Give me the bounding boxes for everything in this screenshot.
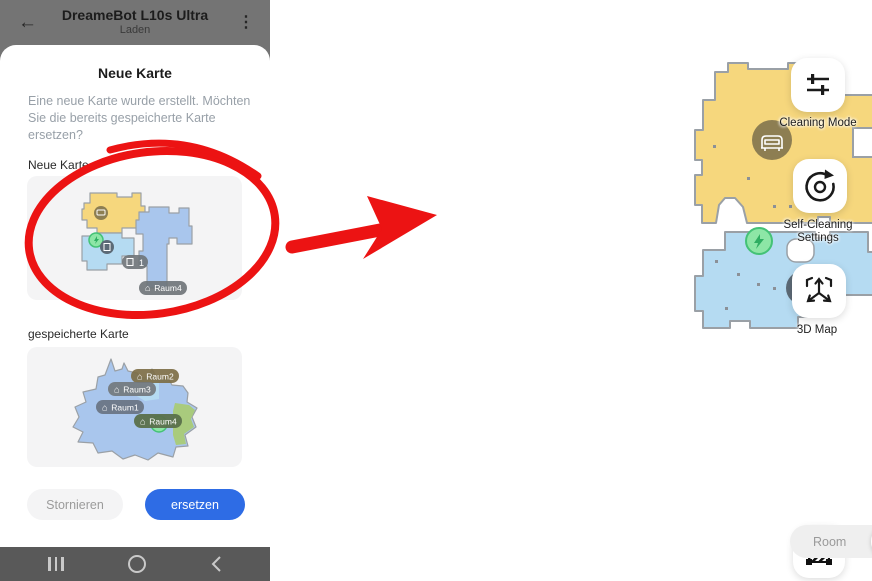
mode-option-room[interactable]: Room [790,535,869,549]
cancel-button[interactable]: Stornieren [27,489,123,520]
home-button-icon[interactable] [128,555,146,573]
house-icon: ⌂ [102,403,107,413]
tune-sliders-icon [799,66,837,104]
mini-dock-pill: 1 [122,255,148,269]
overflow-menu-icon[interactable]: ⋮ [238,12,254,32]
map-view[interactable]: Cleaning Mode Self-Cleaning Settings [270,0,872,581]
house-icon: ⌂ [145,283,150,293]
map-mode-switch: Room All Zone [790,525,872,558]
self-cleaning-settings-button[interactable] [793,159,847,213]
self-cleaning-settings-label: Self-Cleaning Settings [768,219,868,245]
svg-text:Raum4: Raum4 [154,283,182,293]
rotate-reset-icon [800,166,840,206]
mini-pill-raum4: ⌂ Raum4 [134,414,182,428]
cleaning-mode-label: Cleaning Mode [763,117,872,130]
dialog-message: Eine neue Karte wurde erstellt. Möchten … [28,93,256,144]
map-hole [853,128,872,157]
svg-text:1: 1 [139,258,144,268]
phone-app-panel: ← DreameBot L10s Ultra Laden ⋮ Neue Kart… [0,0,270,581]
replace-map-dialog: Neue Karte Eine neue Karte wurde erstell… [0,45,270,547]
house-icon: ⌂ [140,417,145,427]
device-status: Laden [0,24,270,36]
move-3d-icon [799,271,839,311]
saved-map-label: gespeicherte Karte [28,327,129,341]
house-icon: ⌂ [137,372,142,382]
svg-text:Raum4: Raum4 [149,417,177,427]
svg-text:Raum2: Raum2 [146,372,174,382]
device-title: DreameBot L10s Ultra [0,7,270,23]
svg-text:Raum3: Raum3 [123,385,151,395]
mini-pill-raum2: ⌂ Raum2 [131,369,179,383]
mini-robot-icon [100,240,114,254]
mini-pill-raum1: ⌂ Raum1 [96,400,144,414]
recents-button-icon[interactable] [48,557,64,571]
new-map-label: Neue Karte [28,158,89,172]
3d-map-label: 3D Map [762,324,872,337]
mini-pill-raum3: ⌂ Raum3 [108,382,156,396]
house-icon: ⌂ [114,385,119,395]
mini-bed-marker-icon [94,206,108,220]
svg-text:Raum1: Raum1 [111,403,139,413]
cleaning-mode-button[interactable] [791,58,845,112]
android-nav-bar [0,547,270,581]
3d-map-button[interactable] [792,264,846,318]
dialog-title: Neue Karte [0,65,270,81]
mini-room-pill: ⌂ Raum4 [139,281,187,295]
confirm-button[interactable]: ersetzen [145,489,245,520]
screenshot-root: Cleaning Mode Self-Cleaning Settings [0,0,872,581]
back-button-icon[interactable] [210,555,222,573]
new-map-thumbnail[interactable]: 1 ⌂ Raum4 [27,176,242,300]
mini-room-blue [136,207,192,288]
saved-map-thumbnail[interactable]: ⌂ Raum2 ⌂ Raum3 ⌂ Raum1 [27,347,242,467]
